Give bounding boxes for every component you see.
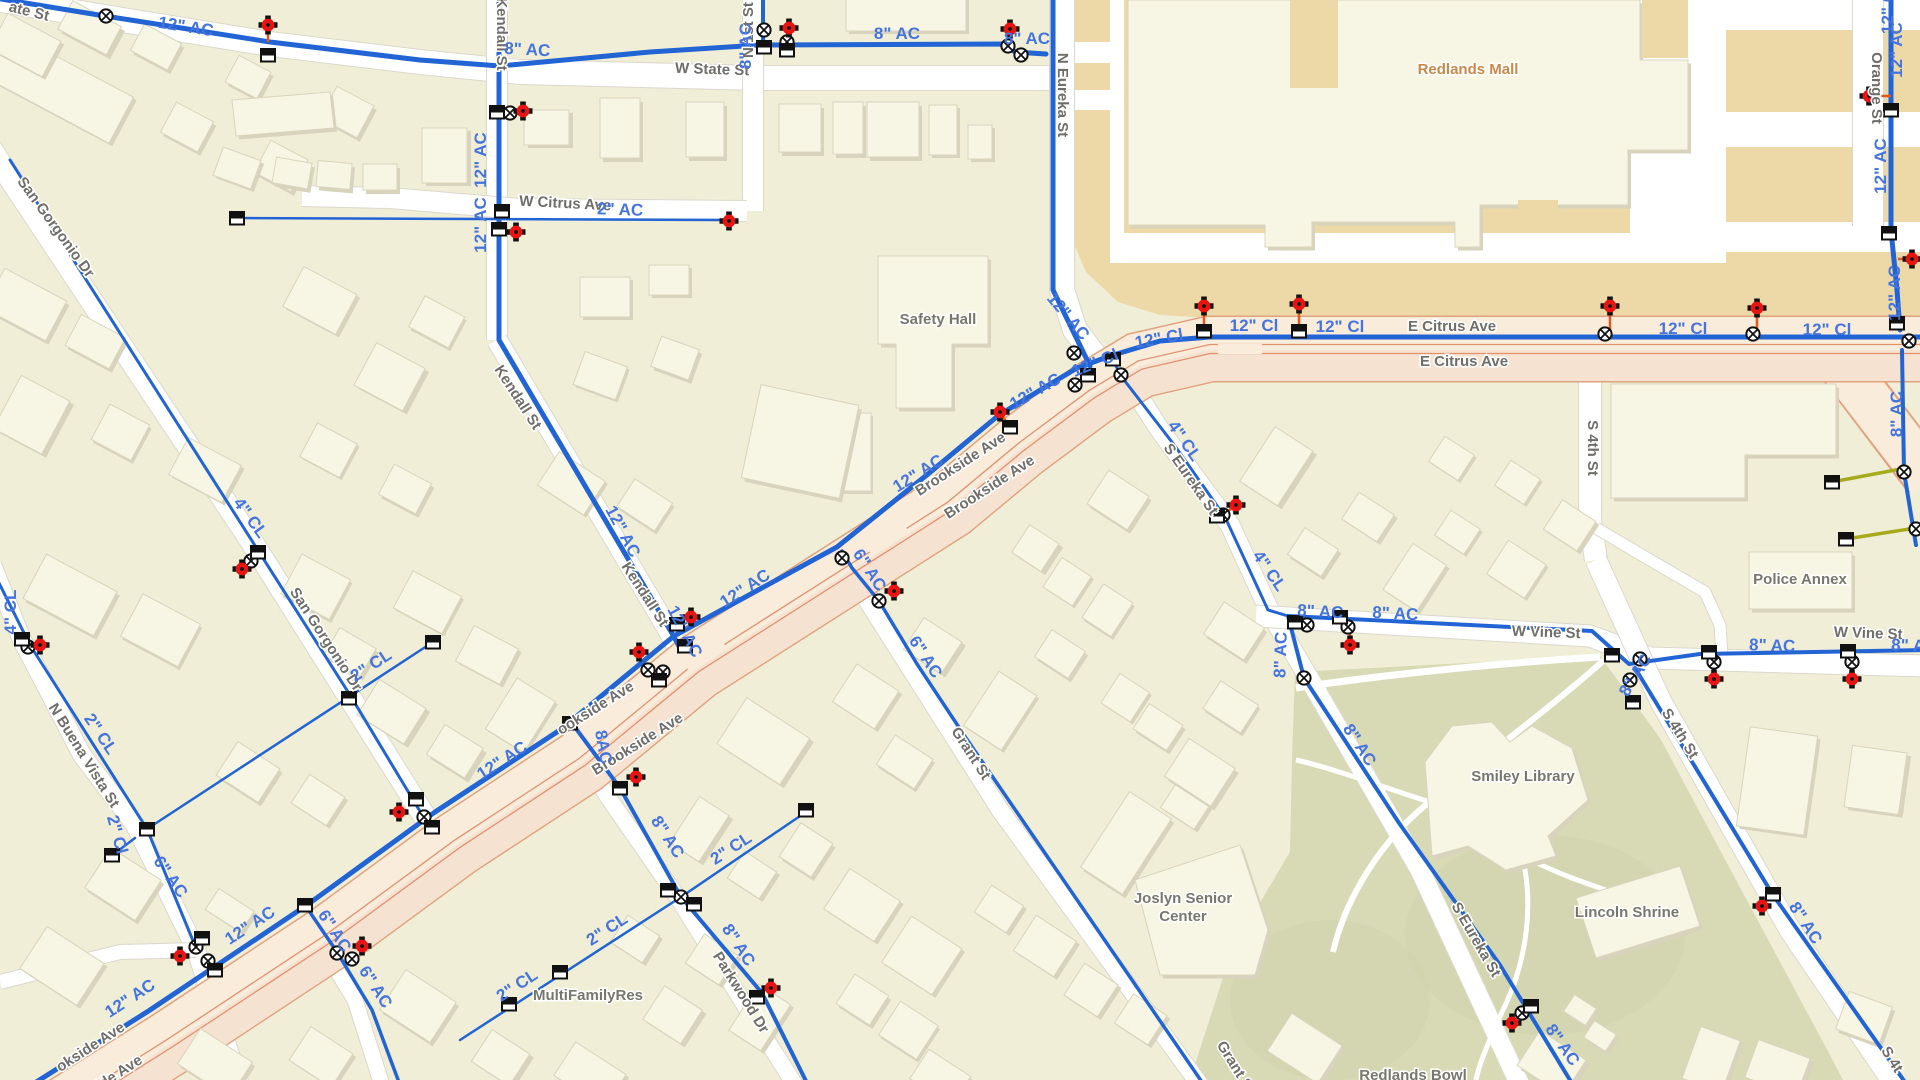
svg-text:12" Cl: 12" Cl (1230, 316, 1279, 335)
svg-text:Orange St: Orange St (1868, 52, 1885, 124)
svg-text:12" Cl: 12" Cl (1316, 317, 1365, 336)
svg-text:8" A: 8" A (1891, 635, 1920, 655)
svg-text:Safety Hall: Safety Hall (900, 311, 977, 328)
svg-text:Joslyn Senior: Joslyn Senior (1134, 890, 1233, 907)
svg-text:E Citrus Ave: E Citrus Ave (1420, 353, 1508, 370)
svg-text:Center: Center (1159, 908, 1207, 925)
svg-text:Redlands Mall: Redlands Mall (1418, 61, 1519, 78)
svg-text:N Eureka St: N Eureka St (1054, 53, 1071, 137)
svg-text:8" AC: 8" AC (504, 39, 551, 60)
svg-text:Police Annex: Police Annex (1753, 571, 1847, 588)
svg-text:4" CL: 4" CL (1, 590, 20, 635)
svg-text:8" AC: 8" AC (1270, 631, 1291, 678)
svg-text:2" AC: 2" AC (597, 199, 644, 220)
svg-text:Smiley Library: Smiley Library (1471, 768, 1575, 785)
svg-text:8" AC: 8" AC (736, 23, 755, 69)
svg-text:Kendall St: Kendall St (493, 0, 510, 71)
svg-text:12" AC: 12" AC (1871, 138, 1890, 194)
svg-text:8" AC: 8" AC (874, 24, 920, 43)
svg-text:12" AC: 12" AC (1885, 265, 1904, 321)
svg-text:Lincoln Shrine: Lincoln Shrine (1575, 904, 1679, 921)
svg-text:12" AC: 12" AC (471, 132, 490, 188)
svg-text:Redlands Bowl: Redlands Bowl (1359, 1067, 1467, 1080)
svg-text:MultiFamilyRes: MultiFamilyRes (533, 987, 643, 1004)
svg-text:12" Cl: 12" Cl (1659, 319, 1708, 338)
svg-text:8" AC: 8" AC (1004, 29, 1050, 48)
svg-text:E Citrus Ave: E Citrus Ave (1408, 318, 1496, 335)
svg-text:8" AC: 8" AC (1297, 601, 1344, 622)
svg-text:12" AC: 12" AC (471, 197, 490, 253)
svg-text:8" AC: 8" AC (1372, 603, 1419, 624)
svg-text:W Vine St: W Vine St (1511, 623, 1580, 642)
svg-text:8" AC: 8" AC (1749, 635, 1796, 656)
svg-text:S 4th St: S 4th St (1584, 420, 1601, 476)
svg-text:12" C: 12" C (1878, 0, 1897, 34)
svg-text:8" AC: 8" AC (1887, 391, 1906, 437)
svg-text:12" Cl: 12" Cl (1803, 320, 1852, 339)
